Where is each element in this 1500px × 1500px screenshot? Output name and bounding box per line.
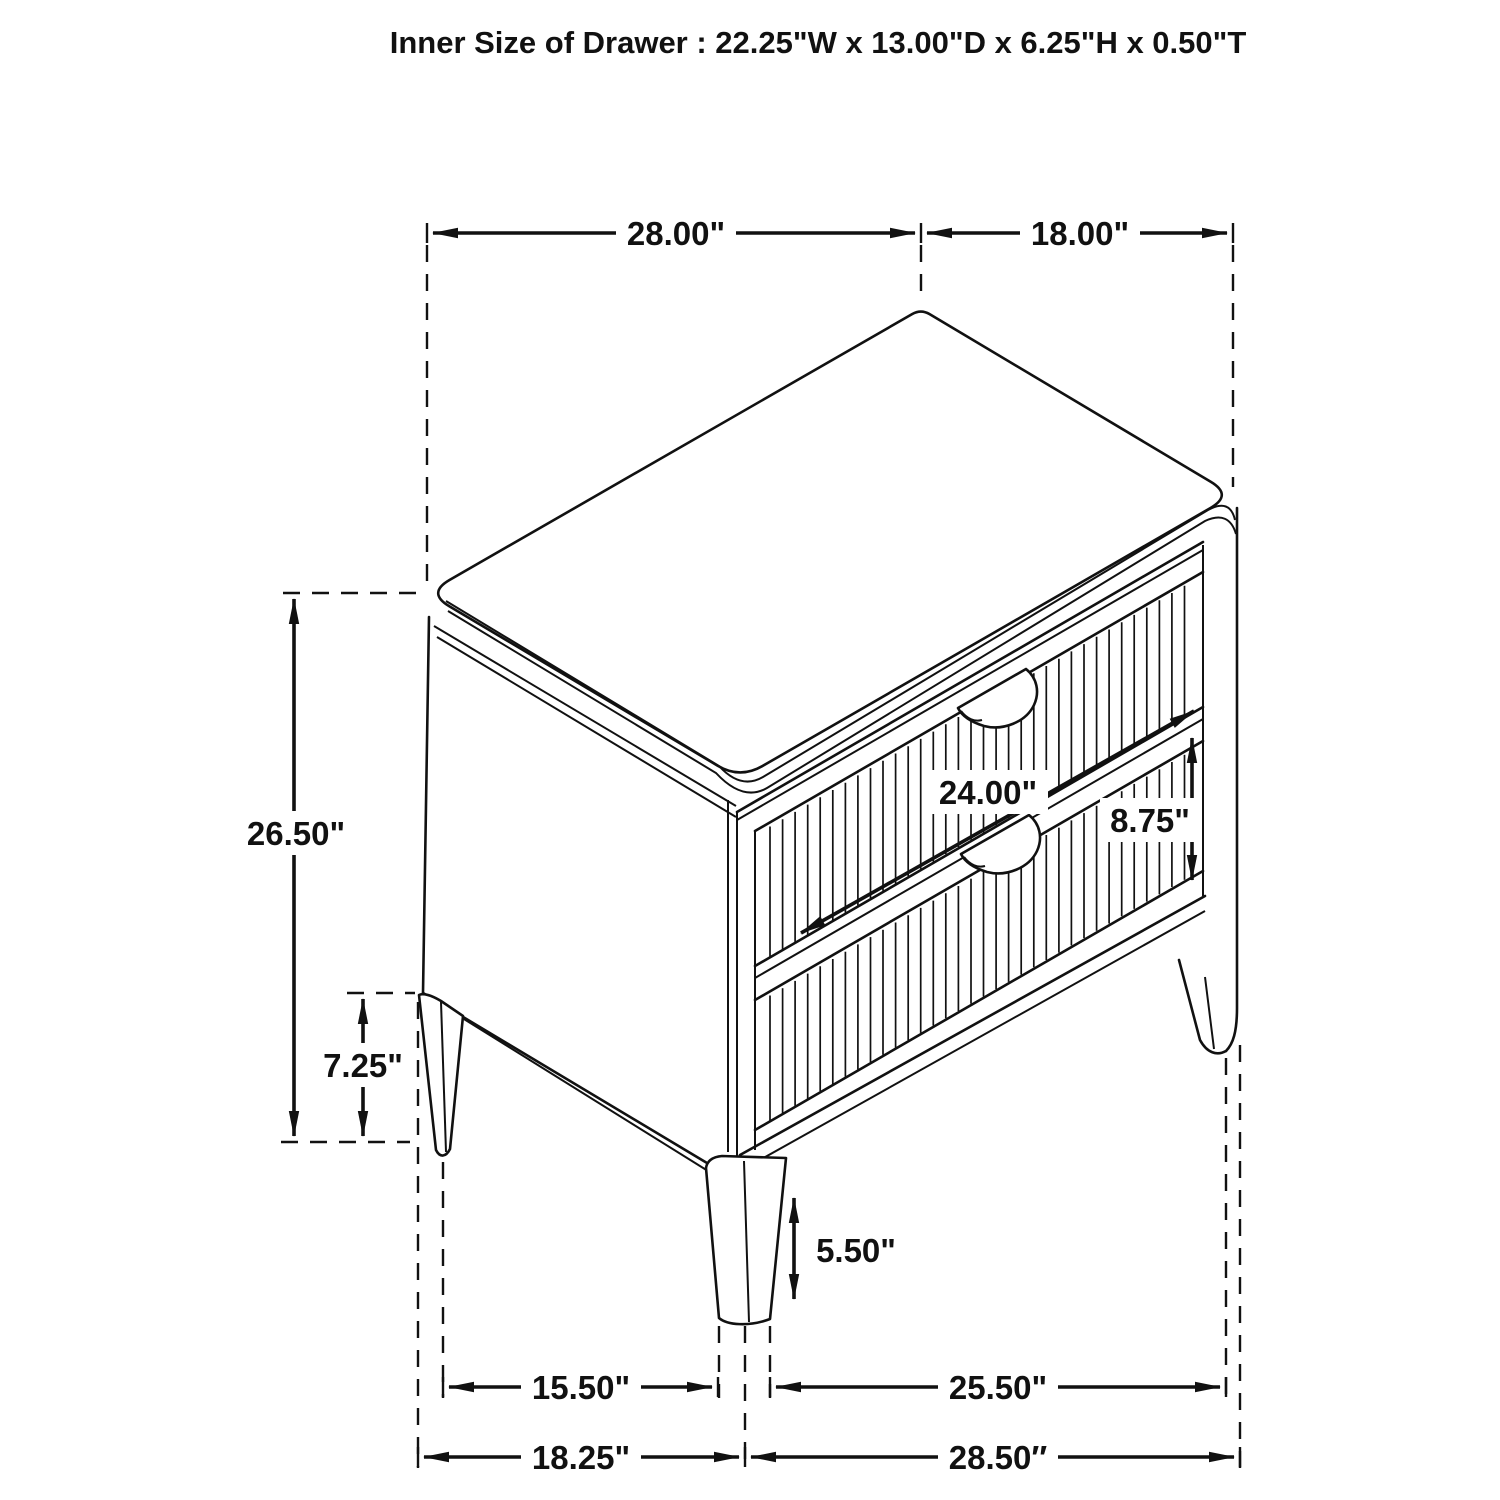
left-side-panel xyxy=(423,617,737,1171)
right-edge-silhouette xyxy=(1226,508,1237,1051)
tabletop-outline xyxy=(438,312,1222,773)
dim-leg-span-side: 15.50" xyxy=(532,1369,630,1406)
dim-top-width: 28.00" xyxy=(627,215,725,252)
dim-leg-span-front: 25.50" xyxy=(949,1369,1047,1406)
dim-base-width: 28.50″ xyxy=(949,1439,1048,1476)
dim-top-depth: 18.00" xyxy=(1031,215,1129,252)
right-rear-leg xyxy=(1179,960,1226,1053)
drawing-title: Inner Size of Drawer : 22.25"W x 13.00"D… xyxy=(390,25,1247,60)
dim-base-depth: 18.25" xyxy=(532,1439,630,1476)
dimension-ticks xyxy=(418,223,1240,1467)
furniture-dimension-diagram: Inner Size of Drawer : 22.25"W x 13.00"D… xyxy=(0,0,1500,1500)
dim-front-leg-height: 5.50" xyxy=(816,1232,896,1269)
dim-drawer-front-height: 8.75" xyxy=(1110,802,1190,839)
drawing-canvas: Inner Size of Drawer : 22.25"W x 13.00"D… xyxy=(0,0,1500,1500)
dim-drawer-width: 24.00" xyxy=(939,774,1037,811)
tabletop-edge-line-1 xyxy=(446,506,1235,782)
dim-rear-leg-height: 7.25" xyxy=(323,1047,403,1084)
dim-overall-height: 26.50" xyxy=(247,815,345,852)
